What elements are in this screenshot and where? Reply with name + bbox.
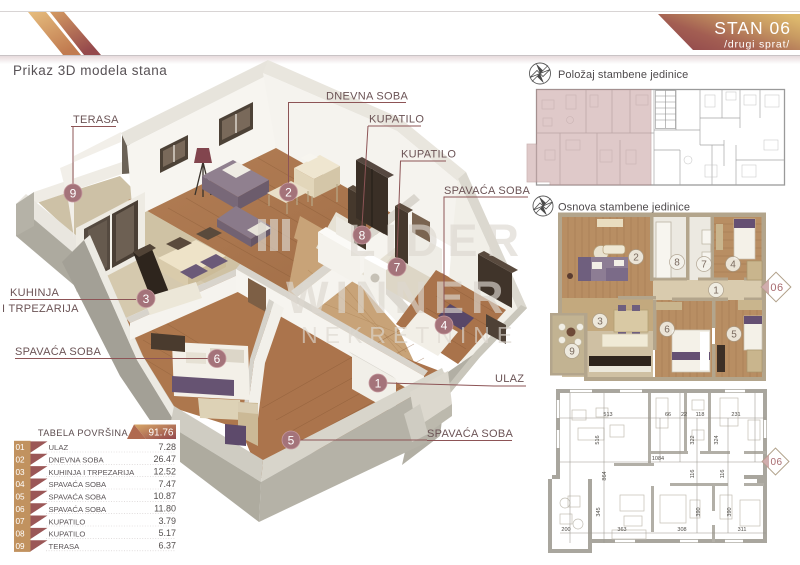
svg-text:390: 390 [696, 507, 702, 516]
svg-text:SPAVAĆA SOBA: SPAVAĆA SOBA [49, 480, 108, 489]
svg-text:WINNER: WINNER [286, 272, 510, 323]
svg-text:TABELA POVRŠINA: TABELA POVRŠINA [38, 428, 129, 438]
svg-text:11.80: 11.80 [154, 504, 176, 514]
svg-text:SPAVAĆA SOBA: SPAVAĆA SOBA [15, 345, 101, 358]
svg-text:06: 06 [770, 282, 783, 294]
svg-text:07: 07 [16, 517, 26, 526]
svg-text:324: 324 [714, 435, 720, 444]
svg-text:311: 311 [738, 527, 747, 533]
svg-text:308: 308 [677, 527, 686, 533]
svg-text:3.79: 3.79 [158, 516, 176, 526]
svg-text:/drugi sprat/: /drugi sprat/ [724, 39, 790, 51]
svg-text:5: 5 [731, 330, 737, 341]
svg-text:22: 22 [681, 412, 687, 418]
svg-text:5.17: 5.17 [158, 528, 176, 538]
svg-text:1: 1 [713, 286, 719, 297]
svg-text:7.47: 7.47 [158, 479, 176, 489]
svg-text:KUPATILO: KUPATILO [369, 114, 424, 126]
svg-text:Položaj stambene jedinice: Položaj stambene jedinice [558, 69, 688, 81]
svg-text:DNEVNA SOBA: DNEVNA SOBA [49, 456, 105, 465]
svg-text:KUPATILO: KUPATILO [401, 149, 456, 161]
svg-text:513: 513 [603, 412, 612, 418]
svg-text:SPAVAĆA SOBA: SPAVAĆA SOBA [444, 184, 530, 197]
svg-text:KUHINJA: KUHINJA [10, 287, 60, 299]
svg-text:5: 5 [288, 434, 295, 448]
svg-text:390: 390 [727, 507, 733, 516]
svg-text:516: 516 [595, 435, 601, 444]
svg-text:Osnova stambene jedinice: Osnova stambene jedinice [558, 202, 690, 214]
svg-text:4: 4 [441, 319, 448, 333]
svg-text:3: 3 [143, 292, 150, 306]
svg-text:04: 04 [16, 480, 26, 489]
svg-text:7: 7 [701, 260, 707, 271]
svg-text:8: 8 [674, 258, 680, 269]
svg-text:DNEVNA SOBA: DNEVNA SOBA [326, 91, 409, 103]
svg-text:TERASA: TERASA [73, 114, 119, 126]
svg-text:3: 3 [597, 317, 603, 328]
svg-text:322: 322 [690, 435, 696, 444]
svg-text:6.37: 6.37 [158, 541, 176, 551]
svg-text:NEKRETNINE: NEKRETNINE [301, 322, 519, 348]
svg-text:KUPATILO: KUPATILO [49, 517, 86, 526]
svg-text:STAN 06: STAN 06 [714, 18, 791, 38]
svg-text:116: 116 [690, 470, 696, 479]
svg-text:9: 9 [569, 347, 575, 358]
svg-text:8: 8 [359, 229, 366, 243]
svg-text:231: 231 [731, 412, 740, 418]
svg-text:KUHINJA I TRPEZARIJA: KUHINJA I TRPEZARIJA [49, 468, 136, 477]
svg-text:91.76: 91.76 [148, 428, 173, 439]
svg-text:06: 06 [16, 505, 26, 514]
svg-text:66: 66 [665, 412, 671, 418]
svg-text:363: 363 [617, 527, 626, 533]
svg-text:9: 9 [70, 187, 77, 201]
svg-text:ULAZ: ULAZ [49, 443, 69, 452]
svg-text:ULAZ: ULAZ [495, 373, 524, 385]
svg-text:1: 1 [375, 377, 382, 391]
svg-text:02: 02 [16, 456, 26, 465]
svg-text:LIDER: LIDER [348, 215, 528, 266]
svg-text:345: 345 [596, 507, 602, 516]
svg-text:7.28: 7.28 [158, 442, 176, 452]
svg-text:SPAVAĆA SOBA: SPAVAĆA SOBA [49, 505, 108, 514]
svg-text:6: 6 [214, 352, 221, 366]
svg-text:4: 4 [730, 260, 736, 271]
svg-text:7: 7 [394, 261, 401, 275]
svg-text:05: 05 [16, 493, 26, 502]
svg-text:I TRPEZARIJA: I TRPEZARIJA [2, 303, 79, 315]
svg-text:118: 118 [696, 412, 705, 418]
svg-text:03: 03 [16, 468, 26, 477]
svg-text:SPAVAĆA SOBA: SPAVAĆA SOBA [49, 493, 108, 502]
svg-text:TERASA: TERASA [49, 542, 81, 551]
svg-text:10.87: 10.87 [153, 491, 176, 501]
svg-text:Prikaz 3D modela stana: Prikaz 3D modela stana [13, 63, 167, 78]
svg-text:01: 01 [16, 443, 26, 452]
svg-text:26.47: 26.47 [153, 454, 176, 464]
svg-text:200: 200 [561, 527, 570, 533]
svg-text:2: 2 [285, 186, 292, 200]
svg-text:KUPATILO: KUPATILO [49, 530, 86, 539]
svg-text:12.52: 12.52 [153, 467, 176, 477]
svg-text:864: 864 [602, 471, 608, 480]
svg-text:08: 08 [16, 530, 26, 539]
svg-text:SPAVAĆA SOBA: SPAVAĆA SOBA [427, 427, 513, 440]
svg-text:6: 6 [664, 325, 670, 336]
svg-text:1084: 1084 [652, 456, 664, 462]
svg-text:116: 116 [720, 470, 726, 479]
svg-text:06: 06 [770, 457, 782, 468]
svg-text:2: 2 [633, 253, 639, 264]
svg-text:09: 09 [16, 542, 26, 551]
